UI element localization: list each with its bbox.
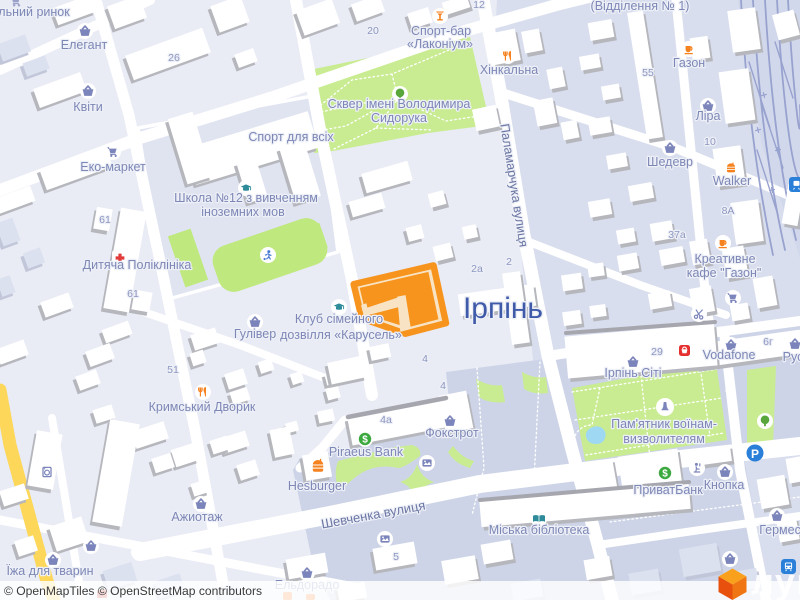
svg-text:$: $ (662, 469, 668, 480)
svg-text:Гулівер: Гулівер (234, 327, 276, 341)
svg-text:Рус: Рус (783, 350, 800, 364)
svg-text:кафе "Газон": кафе "Газон" (687, 266, 762, 280)
svg-text:«Лаконіум»: «Лаконіум» (407, 37, 473, 51)
svg-text:Ліра: Ліра (696, 109, 721, 123)
svg-text:© OpenMapTiles © OpenStreetMap: © OpenMapTiles © OpenStreetMap contribut… (4, 584, 262, 598)
svg-text:Газон: Газон (673, 56, 705, 70)
svg-text:Hesburger: Hesburger (288, 479, 346, 493)
svg-text:визволителям: визволителям (623, 432, 705, 446)
svg-text:61: 61 (99, 214, 111, 226)
svg-text:дозвілля «Карусель»: дозвілля «Карусель» (280, 328, 402, 342)
svg-text:5: 5 (393, 551, 399, 563)
svg-text:20: 20 (367, 25, 379, 37)
svg-text:Креативне: Креативне (694, 252, 755, 266)
svg-text:Кримський Дворик: Кримський Дворик (149, 400, 256, 414)
svg-text:Шедевр: Шедевр (647, 155, 693, 169)
svg-text:Пам'ятник воїнам-: Пам'ятник воїнам- (611, 417, 717, 431)
svg-text:Гермес: Гермес (759, 523, 800, 537)
svg-text:Міська бібліотека: Міська бібліотека (489, 523, 590, 537)
svg-text:Хінкальна: Хінкальна (480, 63, 538, 77)
svg-text:льний ринок: льний ринок (0, 5, 70, 19)
svg-text:Сидорука: Сидорука (371, 111, 427, 125)
svg-text:Дитяча Поліклініка: Дитяча Поліклініка (83, 258, 192, 272)
svg-text:Фокстрот: Фокстрот (425, 426, 479, 440)
svg-text:61: 61 (127, 288, 139, 300)
svg-text:P: P (751, 447, 759, 461)
svg-text:Школа №12 з вивченням: Школа №12 з вивченням (174, 191, 318, 205)
svg-text:Ірпінь Сіті: Ірпінь Сіті (604, 366, 661, 380)
svg-text:Ірпінь: Ірпінь (463, 292, 543, 325)
svg-text:4: 4 (440, 380, 446, 392)
svg-text:55: 55 (642, 67, 654, 79)
svg-text:8А: 8А (722, 205, 735, 217)
svg-text:2а: 2а (471, 263, 483, 275)
svg-text:12: 12 (473, 0, 485, 11)
svg-text:Квіти: Квіти (73, 100, 102, 114)
svg-text:Еко-маркет: Еко-маркет (80, 160, 146, 174)
svg-text:Спорт-бар: Спорт-бар (411, 24, 471, 38)
svg-text:іноземних мов: іноземних мов (201, 205, 285, 219)
svg-text:Кнопка: Кнопка (704, 478, 745, 492)
svg-text:26: 26 (168, 52, 180, 64)
svg-text:Сквер імені Володимира: Сквер імені Володимира (328, 97, 471, 111)
svg-text:2: 2 (506, 256, 512, 268)
svg-text:Piraeus Bank: Piraeus Bank (329, 445, 404, 459)
svg-text:Елегант: Елегант (61, 38, 108, 52)
svg-text:Vodafone: Vodafone (703, 348, 756, 362)
svg-text:Їжа для тварин: Їжа для тварин (6, 564, 93, 578)
svg-text:4: 4 (422, 353, 428, 365)
svg-text:(Відділення № 1): (Відділення № 1) (591, 0, 690, 13)
svg-text:Ажиотаж: Ажиотаж (171, 510, 223, 524)
svg-text:лун: лун (751, 561, 800, 600)
svg-text:37а: 37а (668, 229, 686, 241)
svg-text:Клуб сімейного: Клуб сімейного (295, 312, 383, 326)
svg-text:10: 10 (704, 136, 716, 148)
svg-text:Walker: Walker (713, 174, 751, 188)
svg-text:6г: 6г (763, 336, 773, 348)
svg-text:$: $ (362, 435, 368, 446)
svg-text:4а: 4а (380, 414, 392, 426)
svg-text:51: 51 (167, 364, 179, 376)
svg-text:Спорт для всіх: Спорт для всіх (248, 130, 334, 144)
svg-text:29: 29 (651, 346, 663, 358)
svg-text:ПриватБанк: ПриватБанк (633, 483, 703, 497)
